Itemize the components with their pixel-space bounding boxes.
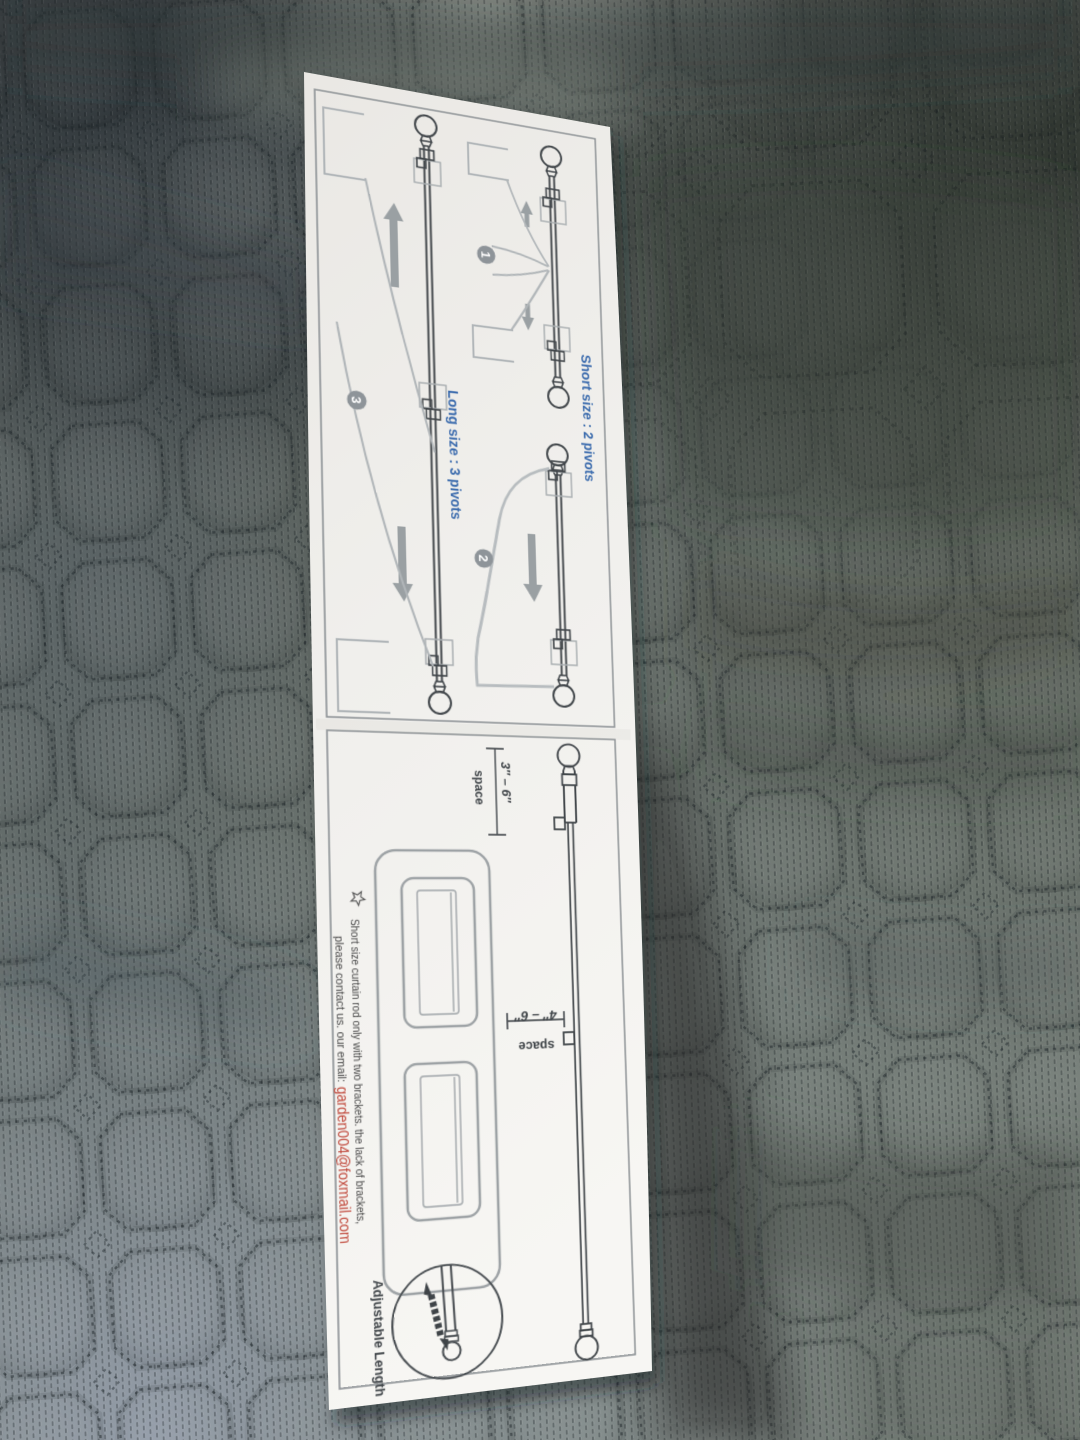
- svg-text:garden004@foxmail.com: garden004@foxmail.com: [333, 1086, 354, 1244]
- svg-text:3″ – 6″: 3″ – 6″: [498, 762, 513, 804]
- svg-text:space: space: [472, 770, 487, 805]
- svg-text:4″ – 6″: 4″ – 6″: [514, 1007, 558, 1024]
- svg-text:Short size : 2 pivots: Short size : 2 pivots: [577, 354, 596, 483]
- svg-text:3: 3: [348, 396, 364, 405]
- svg-text:please contact us. our email:: please contact us. our email:: [332, 936, 348, 1083]
- svg-text:space: space: [518, 1038, 555, 1055]
- svg-text:2: 2: [476, 554, 491, 562]
- svg-text:Adjustable Length: Adjustable Length: [370, 1279, 388, 1397]
